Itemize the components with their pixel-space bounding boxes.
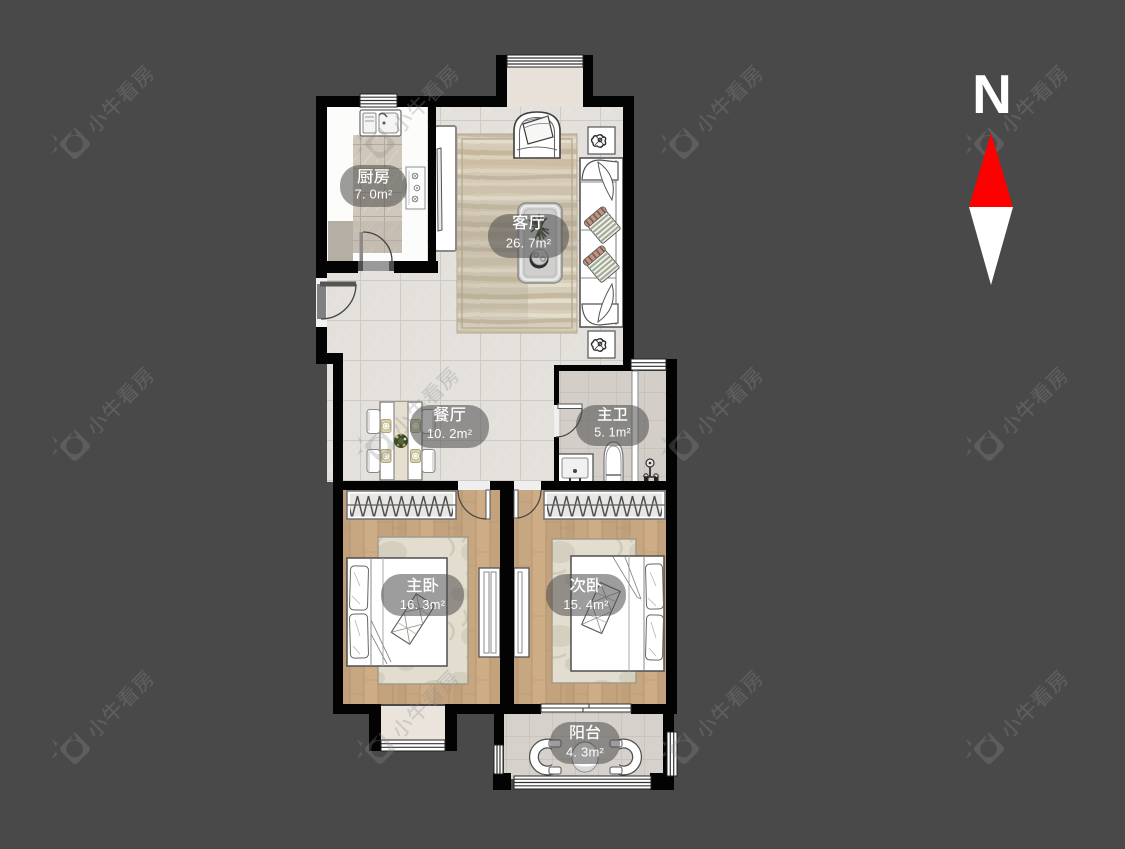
svg-text:5. 1m²: 5. 1m² [594,426,631,440]
svg-text:16. 3m²: 16. 3m² [400,597,446,612]
svg-text:N: N [972,63,1012,125]
svg-text:4. 3m²: 4. 3m² [566,745,605,760]
svg-text:10. 2m²: 10. 2m² [427,426,473,441]
svg-text:7. 0m²: 7. 0m² [354,187,393,202]
svg-text:26. 7m²: 26. 7m² [506,236,552,251]
svg-text:15. 4m²: 15. 4m² [563,597,609,612]
